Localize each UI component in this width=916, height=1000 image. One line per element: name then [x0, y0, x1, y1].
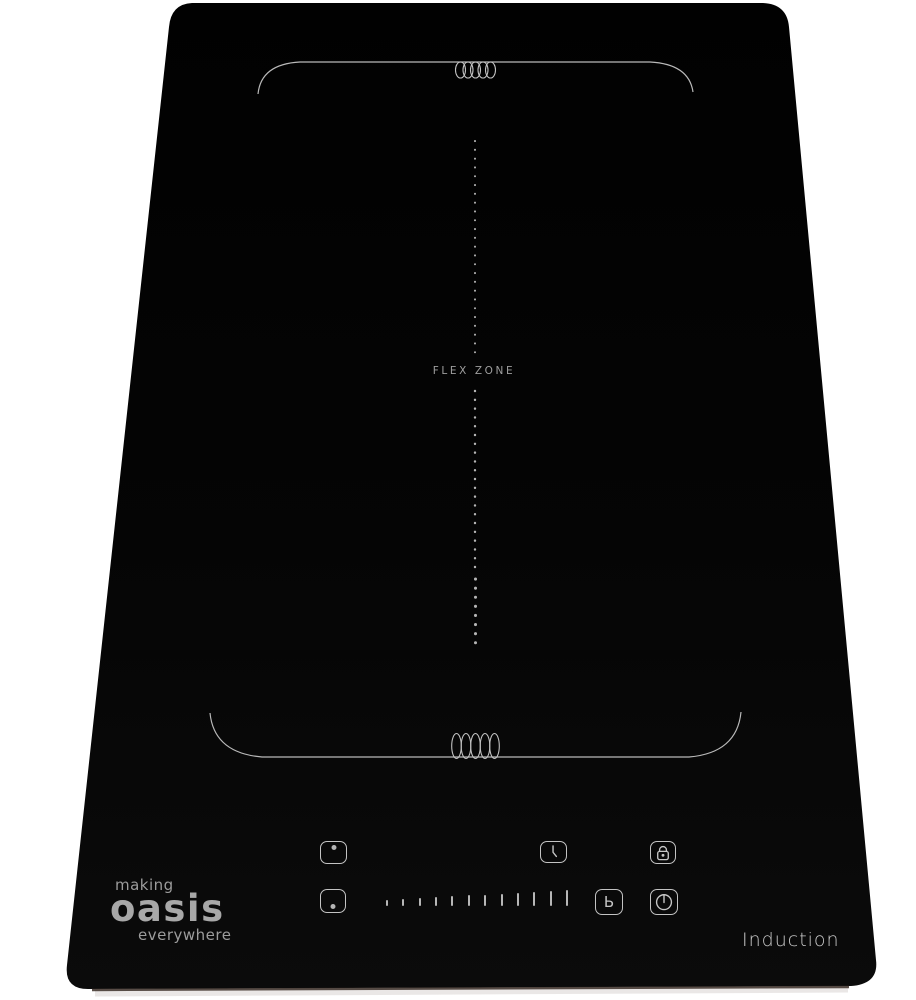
power-level-tick[interactable]	[419, 898, 421, 906]
power-level-tick[interactable]	[484, 895, 486, 906]
power-level-tick[interactable]	[435, 897, 437, 906]
power-level-tick[interactable]	[451, 896, 453, 906]
padlock-icon	[651, 842, 675, 864]
power-level-tick[interactable]	[517, 893, 519, 906]
power-level-tick[interactable]	[386, 900, 388, 906]
boost-button[interactable]: Ь	[595, 889, 623, 915]
brand-logo: making oasis everywhere	[110, 876, 231, 944]
power-button[interactable]	[650, 889, 678, 915]
power-level-tick[interactable]	[533, 892, 535, 906]
flex-zone-label: FLEX ZONE	[394, 365, 554, 377]
power-level-tick[interactable]	[550, 891, 552, 906]
zone-select-lower-button[interactable]	[320, 889, 346, 913]
power-level-tick[interactable]	[468, 895, 470, 906]
glass-surface	[67, 3, 877, 989]
power-level-tick[interactable]	[566, 890, 568, 906]
timer-button[interactable]	[540, 841, 567, 863]
cooktop-glass	[0, 0, 916, 1000]
upper-zone-dot-icon	[331, 845, 336, 850]
power-level-tick[interactable]	[402, 899, 404, 906]
child-lock-button[interactable]	[650, 841, 676, 864]
product-label: Induction	[742, 929, 840, 951]
induction-hob-product-photo: FLEX ZONE Ь making oasis	[0, 0, 916, 1000]
brand-logo-line2: oasis	[110, 894, 231, 924]
brand-logo-line3: everywhere	[138, 926, 231, 944]
lower-zone-dot-icon	[331, 904, 336, 909]
clock-icon	[541, 841, 566, 863]
zone-select-upper-button[interactable]	[320, 841, 347, 864]
power-level-tick[interactable]	[501, 894, 503, 906]
power-icon	[651, 889, 677, 915]
power-slider[interactable]	[386, 889, 568, 906]
boost-icon: Ь	[604, 895, 614, 910]
